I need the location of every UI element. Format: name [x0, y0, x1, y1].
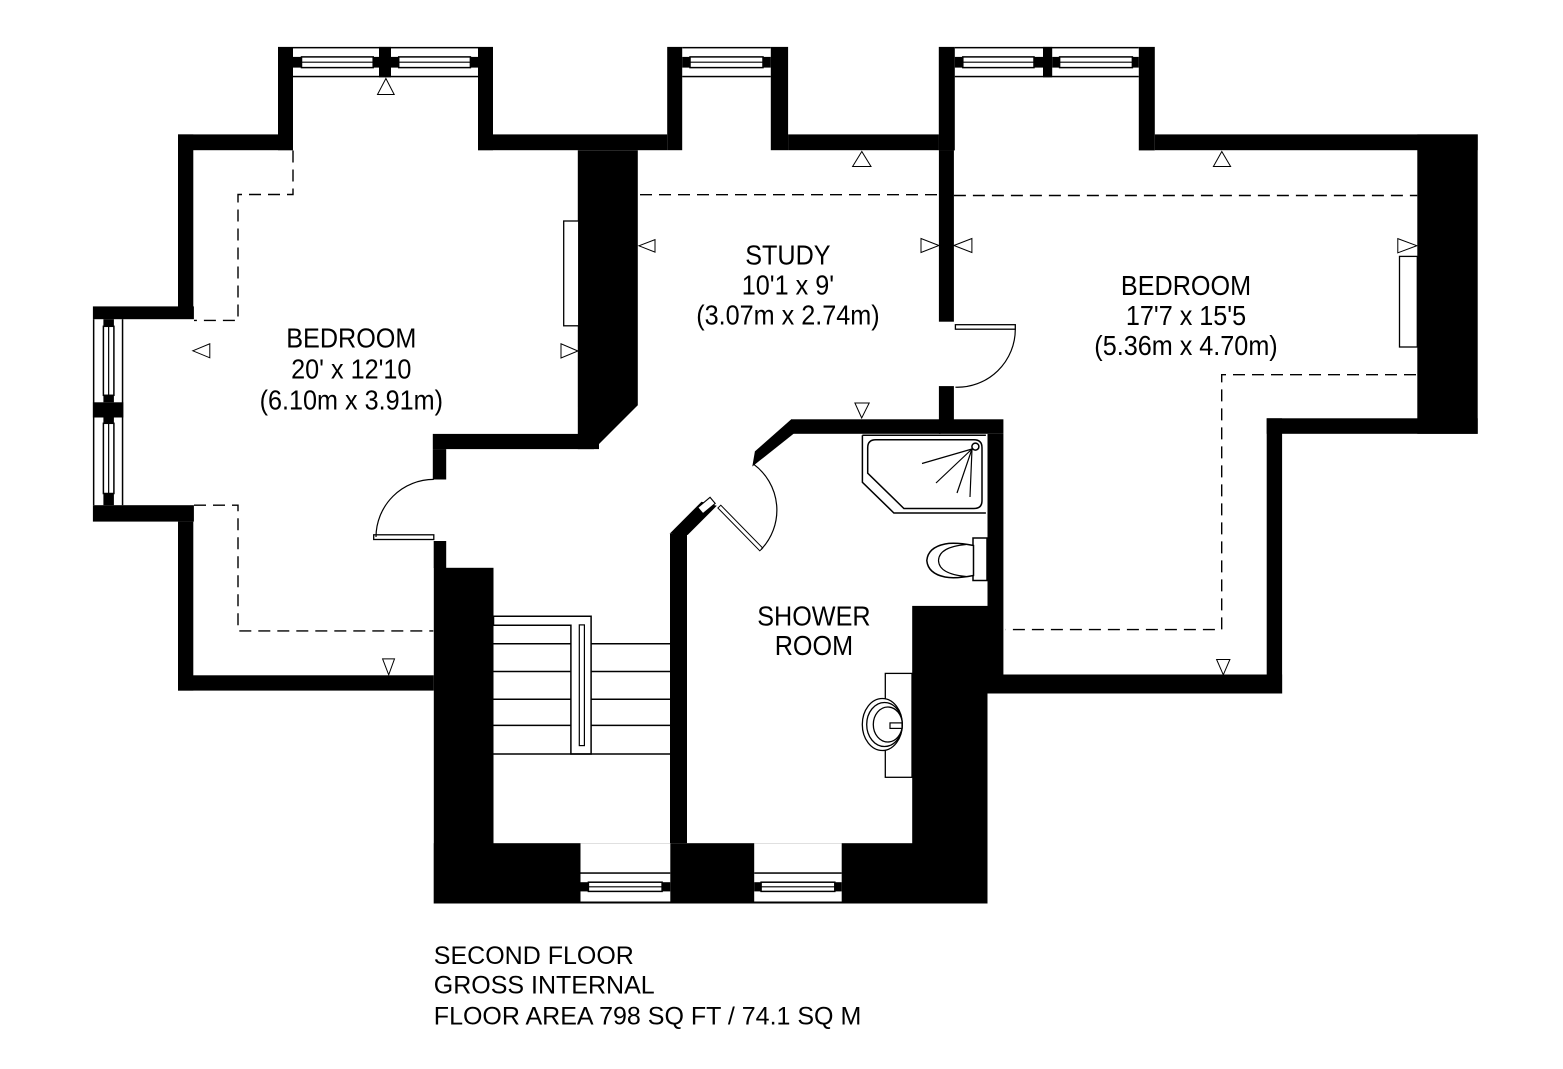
- svg-text:SECOND FLOOR: SECOND FLOOR: [434, 942, 634, 970]
- svg-text:10'1 x 9': 10'1 x 9': [742, 269, 834, 301]
- svg-text:(3.07m x 2.74m): (3.07m x 2.74m): [696, 299, 879, 331]
- svg-text:STUDY: STUDY: [745, 239, 831, 271]
- svg-text:BEDROOM: BEDROOM: [286, 322, 416, 354]
- svg-text:17'7 x 15'5: 17'7 x 15'5: [1126, 300, 1246, 332]
- svg-text:ROOM: ROOM: [775, 630, 853, 662]
- svg-text:FLOOR AREA 798 SQ FT / 74.1 SQ: FLOOR AREA 798 SQ FT / 74.1 SQ M: [434, 1003, 861, 1031]
- svg-text:GROSS INTERNAL: GROSS INTERNAL: [434, 972, 655, 1000]
- svg-text:SHOWER: SHOWER: [757, 600, 870, 632]
- svg-text:BEDROOM: BEDROOM: [1121, 270, 1251, 302]
- svg-text:20' x 12'10: 20' x 12'10: [291, 353, 411, 385]
- svg-text:(5.36m x 4.70m): (5.36m x 4.70m): [1094, 330, 1277, 362]
- svg-text:(6.10m x 3.91m): (6.10m x 3.91m): [260, 384, 443, 416]
